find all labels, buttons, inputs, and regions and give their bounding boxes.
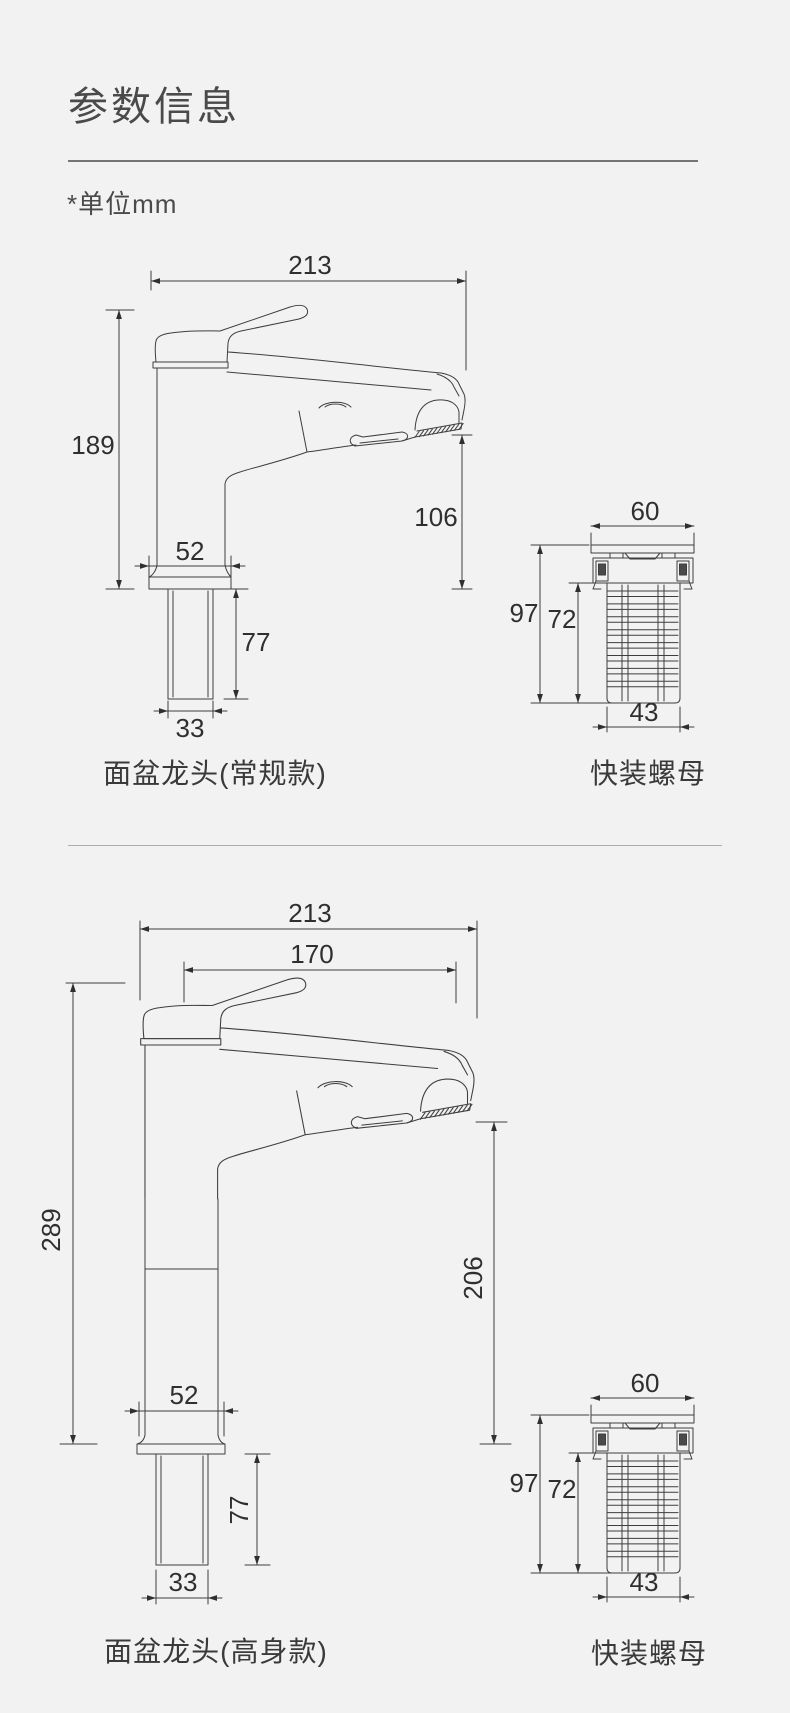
tall-base-flange bbox=[137, 1435, 225, 1454]
nut-label-2: 快装螺母 bbox=[549, 1632, 749, 1672]
dim-faucet1-shank-width: 33 bbox=[176, 713, 205, 743]
dimensions-section-1: 21318910652773360977243 bbox=[71, 250, 694, 743]
dim-faucet2-spout-height: 206 bbox=[458, 1256, 488, 1299]
dim-faucet1-spout-height: 106 bbox=[414, 502, 457, 532]
section-divider bbox=[68, 845, 722, 846]
dim-nut2-body-width: 43 bbox=[630, 1567, 659, 1597]
dim-faucet2-shank-length: 77 bbox=[224, 1496, 254, 1525]
dim-faucet1-total-width: 213 bbox=[288, 250, 331, 280]
dim-nut1-body-width: 43 bbox=[630, 697, 659, 727]
dim-faucet1-base-width: 52 bbox=[176, 536, 205, 566]
page-title: 参数信息 bbox=[68, 74, 240, 132]
quick-nut-drawing-1 bbox=[591, 545, 694, 703]
dim-nut1-total-height: 97 bbox=[510, 598, 539, 628]
faucet-tall-label: 面盆龙头(高身款) bbox=[66, 1630, 366, 1670]
dim-nut1-top-width: 60 bbox=[631, 496, 660, 526]
tall-shank-pipe bbox=[156, 1454, 208, 1565]
drawing-tall-faucet-and-nut: 21317028920652773360977243 bbox=[0, 900, 790, 1613]
title-underline bbox=[68, 160, 698, 162]
drawing-regular-faucet-and-nut: 21318910652773360977243 bbox=[0, 230, 790, 753]
nut-label-1: 快装螺母 bbox=[548, 752, 748, 792]
dim-nut1-body-height: 72 bbox=[548, 604, 577, 634]
dim-nut2-total-height: 97 bbox=[510, 1468, 539, 1498]
dim-faucet2-spout-reach: 170 bbox=[290, 939, 333, 969]
dim-nut2-top-width: 60 bbox=[631, 1368, 660, 1398]
tall-faucet-drawing bbox=[137, 978, 474, 1565]
faucet-base-flange bbox=[149, 565, 231, 589]
dimensions-section-2: 21317028920652773360977243 bbox=[36, 900, 694, 1604]
dim-faucet2-total-width: 213 bbox=[288, 900, 331, 928]
dim-faucet1-shank-length: 77 bbox=[242, 627, 271, 657]
quick-nut-drawing-2 bbox=[591, 1415, 694, 1573]
unit-note: *单位mm bbox=[67, 184, 177, 221]
dim-faucet2-shank-width: 33 bbox=[169, 1567, 198, 1597]
dim-faucet2-total-height: 289 bbox=[36, 1208, 66, 1251]
parameter-info-page: 参数信息 *单位mm bbox=[0, 0, 790, 1713]
dim-nut2-body-height: 72 bbox=[548, 1474, 577, 1504]
dim-faucet2-base-width: 52 bbox=[170, 1380, 199, 1410]
faucet-shank-pipe bbox=[168, 589, 213, 699]
dim-faucet1-total-height: 189 bbox=[71, 430, 114, 460]
faucet-regular-label: 面盆龙头(常规款) bbox=[65, 752, 365, 792]
